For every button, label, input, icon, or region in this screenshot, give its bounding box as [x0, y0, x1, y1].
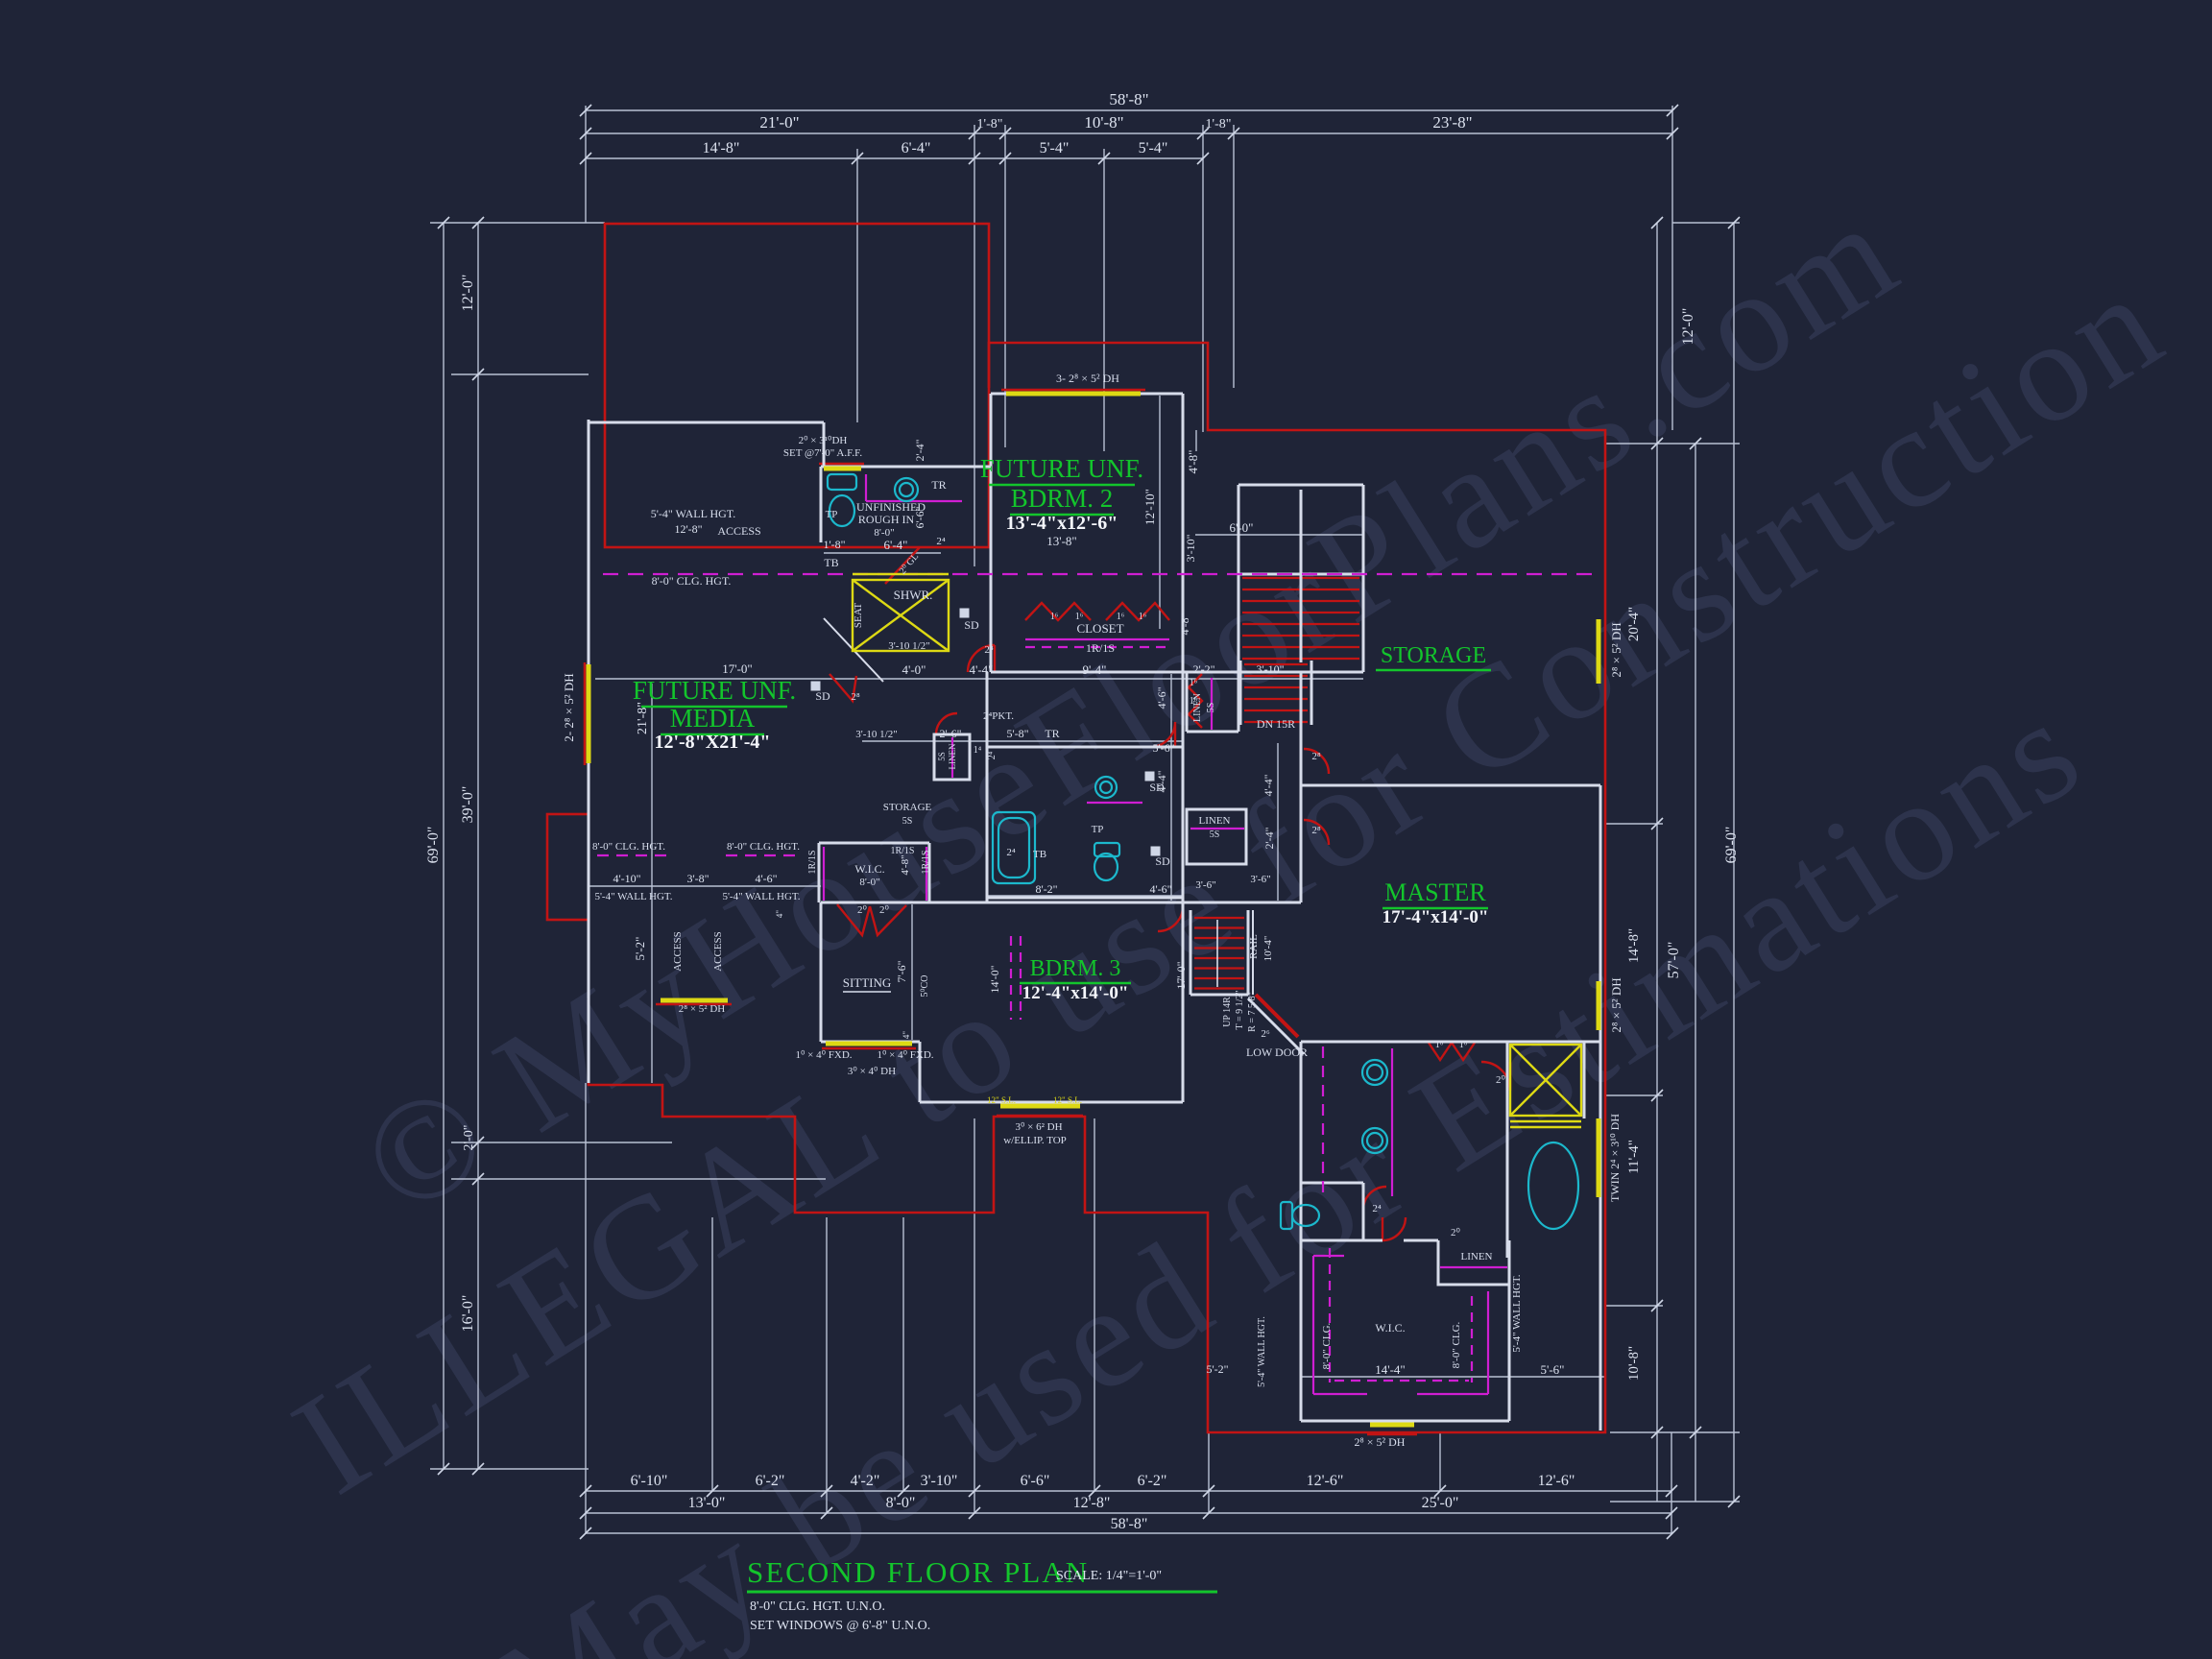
- plan-label: 3'-10 1/2": [888, 640, 929, 652]
- plan-label: 2⁴: [1372, 1203, 1382, 1214]
- plan-label: 1'-8": [977, 117, 1003, 132]
- plan-label: STORAGE: [883, 802, 932, 813]
- plan-label: 2⁴PKT.: [983, 710, 1014, 722]
- plan-label: 1R/1S: [890, 846, 914, 856]
- plan-label: 5'-6": [1541, 1362, 1565, 1377]
- plan-label: 21'-8": [636, 702, 650, 734]
- plan-label: 13'-4"x12'-6": [1006, 513, 1118, 534]
- plan-label: 3- 2⁸ × 5² DH: [1056, 372, 1119, 385]
- plan-label: 12" S.L.: [987, 1095, 1016, 1105]
- plan-label: 2⁸ × 5² DH: [1609, 622, 1623, 677]
- bathtub-oval: [1528, 1142, 1578, 1229]
- plan-label: SHWR.: [894, 588, 933, 602]
- plan-label: 6'-6": [913, 506, 926, 528]
- plan-label: LINEN: [948, 743, 957, 769]
- plan-label: 1⁰ × 4⁰ FXD.: [795, 1049, 852, 1061]
- plan-label: 8'-0" CLG. HGT.: [592, 841, 665, 853]
- plan-label: 5S: [937, 752, 947, 761]
- plan-label: 5'-8": [1006, 727, 1028, 740]
- plan-label: 2⁰ GL: [898, 551, 921, 576]
- plan-label: 1⁶: [1435, 1040, 1444, 1050]
- plan-label: 39'-0": [460, 786, 476, 824]
- plan-label: 4'-2": [851, 1473, 880, 1489]
- plan-label: 2⁴: [987, 751, 998, 759]
- plan-label: 14'-0": [988, 965, 1001, 993]
- plan-label: 8'-2": [1035, 882, 1057, 896]
- plan-label: 3'-6": [1250, 874, 1270, 885]
- plan-label: 2⁸ × 5² DH: [1609, 977, 1623, 1032]
- plan-label: 4'-8": [1178, 613, 1191, 635]
- plan-label: 16'-0": [460, 1295, 476, 1333]
- plan-label: 5⁰CO: [920, 975, 930, 998]
- plan-label: CLOSET: [1076, 621, 1123, 636]
- plan-label: W.I.C.: [854, 862, 884, 876]
- plan-label: 4'-4": [1155, 770, 1168, 792]
- plan-label: 12" S.L.: [1053, 1095, 1082, 1105]
- plan-label: 4'-6": [755, 872, 777, 885]
- toilet-tank: [828, 474, 856, 490]
- plan-label: RAIL: [1248, 934, 1260, 959]
- plan-label: 4'-0": [902, 662, 926, 677]
- plan-label: ROUGH IN: [858, 513, 915, 526]
- plan-label: SEAT: [853, 603, 864, 629]
- plan-label: w/ELLIP. TOP: [1003, 1135, 1067, 1146]
- plan-label: 7'-6": [895, 960, 908, 982]
- plan-label: 2⁸: [984, 644, 994, 656]
- plan-label: 10'-8": [1626, 1346, 1642, 1381]
- plan-label: 1'-8": [1206, 117, 1232, 132]
- plan-label: 21'-0": [759, 113, 799, 132]
- plan-label: MEDIA: [670, 704, 756, 733]
- plan-label: 1R/1S: [1086, 641, 1115, 655]
- plan-label: 12'-0": [460, 275, 476, 312]
- plan-label: 4'-10": [613, 872, 640, 885]
- plan-label: 6'-4": [902, 140, 931, 156]
- plan-label: 10'-4": [1262, 936, 1274, 962]
- plan-label: 8'-0" CLG.: [1451, 1321, 1462, 1368]
- plan-label: 12'-6": [1307, 1473, 1344, 1489]
- plan-label: 2'-2": [1192, 662, 1214, 676]
- plan-label: 12'-8": [674, 522, 702, 536]
- plan-label: 1⁰ × 4⁰ FXD.: [877, 1049, 933, 1061]
- title-note-2: SET WINDOWS @ 6'-8" U.N.O.: [750, 1619, 930, 1633]
- plan-label: 12'-8": [1073, 1495, 1111, 1511]
- plan-label: 1R/1S: [807, 850, 818, 874]
- plan-label: 9'-4": [1083, 662, 1107, 677]
- plan-label: 4'-8": [900, 854, 911, 875]
- title-scale: SCALE: 1/4"=1'-0": [1056, 1569, 1162, 1583]
- plan-label: 3'-10": [1256, 662, 1284, 676]
- plan-label: 2'-4": [913, 439, 926, 461]
- plan-label: 1⁶: [1190, 696, 1198, 707]
- plan-label: 2⁸: [851, 691, 860, 703]
- plan-label: ACCESS: [717, 524, 760, 538]
- floorplan-canvas: © MyHouseFloorPlans.com ILLEGAL to use f…: [0, 0, 2212, 1659]
- plan-label: 4'-6": [1155, 686, 1168, 709]
- plan-label: 1⁴: [974, 745, 982, 756]
- plan-label: 8'-0": [859, 877, 879, 888]
- plan-label: 8'-0" CLG.: [1321, 1322, 1333, 1369]
- plan-label: 20'-4": [1626, 607, 1642, 641]
- plan-label: 1'-8": [823, 538, 845, 551]
- plan-label: MASTER: [1384, 878, 1486, 906]
- plan-label: 58'-8": [1109, 90, 1148, 108]
- plan-label: 14'-8": [1626, 928, 1642, 963]
- plan-label: 3'-10": [921, 1473, 958, 1489]
- plan-label: 2⁶: [1261, 1028, 1270, 1040]
- plan-label: TP: [826, 509, 838, 520]
- plan-label: STORAGE: [1381, 643, 1486, 668]
- plan-label: 2⁴: [936, 536, 946, 547]
- sink: [895, 478, 918, 501]
- plan-label: 8'-0" CLG. HGT.: [652, 574, 732, 588]
- plan-label: LINEN: [1199, 815, 1231, 827]
- plan-label: 4'-4": [970, 662, 994, 677]
- plan-label: 1⁶: [1139, 612, 1147, 622]
- plan-label: 2'-6": [939, 727, 961, 740]
- plan-label: 5S: [902, 816, 913, 827]
- plan-label: 4'-4": [1262, 774, 1275, 796]
- plan-label: 57'-0": [1666, 942, 1682, 979]
- page-title: SECOND FLOOR PLAN: [747, 1555, 1089, 1589]
- plan-label: T = 9 1/2": [1235, 991, 1245, 1030]
- plan-label: 12'-0": [1680, 308, 1696, 346]
- plan-label: 5'-4" WALL HGT.: [722, 891, 800, 902]
- plan-label: 1⁶: [1190, 678, 1198, 688]
- plan-label: 10'-8": [1084, 113, 1123, 132]
- plan-label: 5'-4": [1139, 140, 1168, 156]
- plan-label: TB: [1033, 849, 1046, 860]
- plan-label: 2⁴: [1006, 847, 1016, 858]
- plan-label: 3'-6": [1195, 879, 1215, 891]
- plan-label: 5'-4" WALL HGT.: [1511, 1274, 1523, 1352]
- plan-label: ACCESS: [672, 931, 684, 972]
- plan-label: TR: [931, 478, 946, 492]
- plan-label: 14'-8": [703, 140, 740, 156]
- plan-label: 6'-2": [1138, 1473, 1167, 1489]
- plan-label: SD: [815, 689, 830, 703]
- plan-label: 2⁰: [1451, 1227, 1461, 1238]
- plan-label: W.I.C.: [1375, 1321, 1405, 1334]
- plan-label: 1⁶: [1117, 612, 1125, 622]
- plan-label: SD: [1155, 854, 1170, 868]
- plan-label: 4": [775, 910, 784, 919]
- plan-label: 5'-4" WALL HGT.: [594, 891, 672, 902]
- plan-label: 2⁸: [1311, 751, 1321, 762]
- plan-label: 5'-2": [633, 937, 647, 961]
- plan-label: TR: [1045, 727, 1059, 740]
- plan-label: 25'-0": [1422, 1495, 1459, 1511]
- plan-label: 58'-8": [1111, 1516, 1148, 1532]
- plan-label: UP 14R: [1222, 997, 1233, 1027]
- plan-label: 17'-0": [722, 661, 752, 676]
- watermark: © MyHouseFloorPlans.com ILLEGAL to use f…: [267, 168, 2190, 1659]
- plan-label: 5S: [1210, 829, 1220, 840]
- plan-label: DN 15R: [1257, 717, 1295, 731]
- plan-label: 12'-4"x14'-0": [1022, 983, 1129, 1003]
- plan-label: 3⁰ × 6² DH: [1015, 1121, 1062, 1133]
- plan-label: 12'-10": [1142, 489, 1157, 525]
- plan-label: 1⁶: [1459, 1040, 1468, 1050]
- plan-label: 4'-6": [1149, 882, 1171, 896]
- plan-label: 3'-10 1/2": [855, 729, 897, 740]
- plan-label: 1R/1S: [921, 850, 931, 874]
- second-floor-plan-drawing: © MyHouseFloorPlans.com ILLEGAL to use f…: [0, 0, 2212, 1659]
- plan-label: 3'-10": [1184, 534, 1197, 562]
- plan-label: TP: [1092, 824, 1104, 835]
- plan-label: SET @7'-0" A.F.F.: [783, 447, 862, 459]
- plan-label: 5S: [1206, 703, 1216, 713]
- plan-label: 4": [902, 1031, 911, 1040]
- plan-label: FUTURE UNF.: [980, 454, 1143, 483]
- plan-label: 3'-8": [686, 872, 709, 885]
- plan-label: BDRM. 2: [1011, 484, 1114, 513]
- plan-label: LOW DOOR: [1246, 1046, 1308, 1059]
- plan-label: 5'-2": [1206, 1362, 1228, 1376]
- plan-label: 8'-0": [886, 1495, 916, 1511]
- plan-label: FUTURE UNF.: [633, 676, 796, 705]
- plan-label: 2⁸ × 5² DH: [679, 1003, 726, 1015]
- plan-label: 12'-8"X21'-4": [654, 732, 770, 753]
- plan-label: 2⁰: [857, 904, 868, 916]
- plan-label: 6'-4": [884, 538, 908, 552]
- plan-label: 8'-0" CLG. HGT.: [727, 841, 800, 853]
- plan-label: TWIN 2⁴ × 3¹⁰ DH: [1608, 1114, 1622, 1202]
- plan-label: 17'-0": [1174, 961, 1188, 989]
- plan-label: 13'-0": [688, 1495, 726, 1511]
- plan-label: 5'-6": [1152, 741, 1174, 755]
- plan-label: 69'-0": [425, 827, 442, 864]
- plan-label: 2⁸: [1311, 825, 1321, 836]
- plan-label: ACCESS: [712, 931, 724, 972]
- plan-label: 13'-8": [1046, 534, 1076, 548]
- plan-label: BDRM. 3: [1030, 956, 1121, 981]
- plan-label: 23'-8": [1432, 113, 1472, 132]
- plan-label: 6'-2": [756, 1473, 785, 1489]
- plan-label: SITTING: [843, 975, 892, 990]
- plan-label: 2'-4": [1262, 827, 1276, 849]
- plan-label: 2⁰: [879, 904, 890, 916]
- title-note-1: 8'-0" CLG. HGT. U.N.O.: [750, 1599, 885, 1614]
- plan-label: 1⁶: [1075, 612, 1084, 622]
- plan-label: 2⁰ × 3¹⁰DH: [799, 435, 848, 446]
- plan-label: SD: [964, 618, 979, 632]
- plan-label: 2⁰: [1496, 1074, 1506, 1086]
- plan-label: 69'-0": [1723, 827, 1740, 864]
- plan-label: 6'-10": [631, 1473, 668, 1489]
- plan-label: TB: [824, 556, 838, 569]
- plan-label: 12'-6": [1538, 1473, 1575, 1489]
- plan-label: 2- 2⁸ × 5² DH: [562, 673, 576, 741]
- plan-label: 5'-4": [1040, 140, 1070, 156]
- plan-label: 11'-4": [1626, 1140, 1642, 1174]
- plan-label: 14'-4": [1375, 1362, 1405, 1377]
- plan-label: 17'-4"x14'-0": [1382, 907, 1489, 927]
- plan-label: 4'-8": [1186, 450, 1200, 474]
- plan-label: R = 7 5/8": [1247, 992, 1258, 1032]
- plan-label: 1⁶: [1050, 612, 1059, 622]
- plan-label: 2⁸ × 5² DH: [1355, 1435, 1406, 1449]
- plan-label: 5'-4" WALL HGT.: [651, 507, 736, 520]
- plan-label: 6'-0": [1230, 520, 1254, 535]
- plan-label: LINEN: [1461, 1251, 1493, 1262]
- plan-label: 3⁰ × 4⁰ DH: [848, 1066, 896, 1077]
- plan-label: 5'-4" WALL HGT.: [1257, 1316, 1267, 1387]
- plan-label: 6'-6": [1021, 1473, 1050, 1489]
